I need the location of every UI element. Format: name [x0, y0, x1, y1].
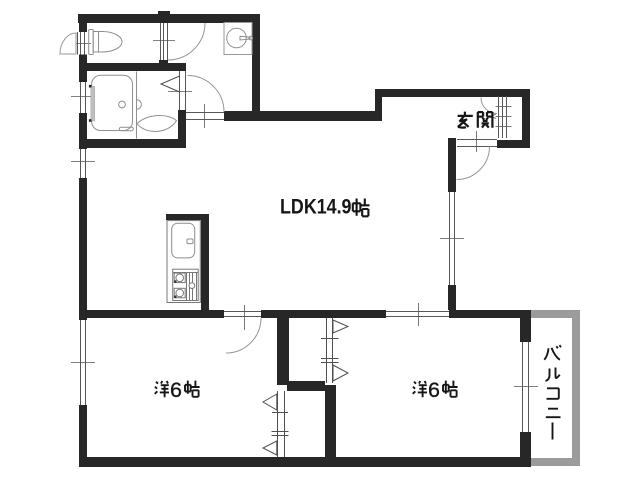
svg-text:LDK14.9: LDK14.9 [280, 196, 352, 219]
svg-text:6: 6 [170, 378, 182, 402]
svg-text:6: 6 [428, 378, 440, 402]
